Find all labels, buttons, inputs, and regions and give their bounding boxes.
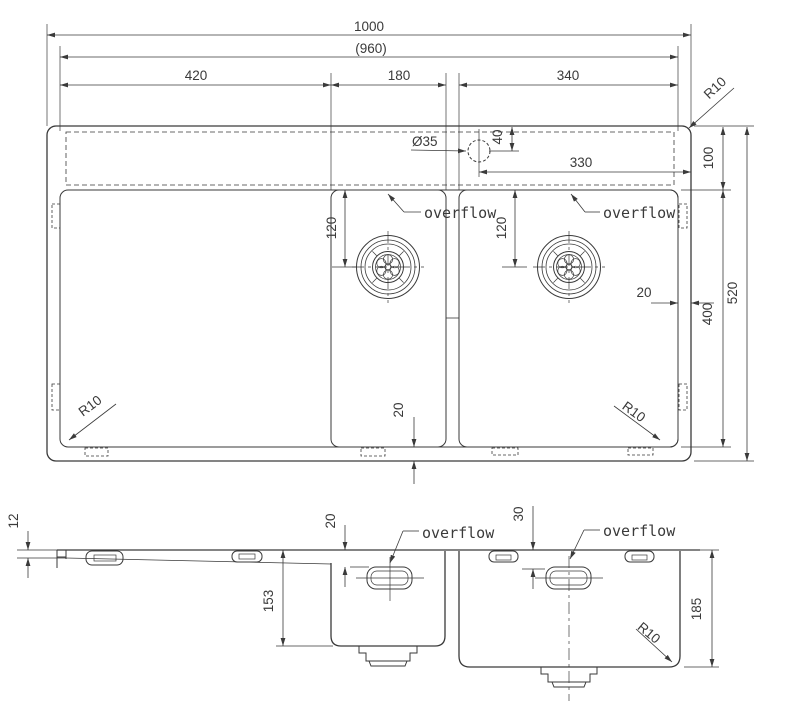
top-view: 1000 (960) 420 180 340 R10 Ø35 40 330 10… xyxy=(47,19,754,484)
dim-rim-thickness: 12 xyxy=(6,513,21,528)
sink-outer-outline xyxy=(47,126,691,461)
dim-faucet-from-right: 330 xyxy=(570,155,593,170)
overflow-label-top-left: overflow xyxy=(424,204,497,222)
dim-small-bowl-depth: 153 xyxy=(261,590,276,613)
dim-small-bowl-width: 180 xyxy=(388,68,411,83)
dim-overall-width: 1000 xyxy=(354,19,384,34)
overflow-hole-small xyxy=(356,557,424,601)
dim-large-bowl-width: 340 xyxy=(557,68,580,83)
leader-lines-top xyxy=(69,88,734,440)
overflow-label-top-right: overflow xyxy=(603,204,676,222)
small-bowl-outline xyxy=(331,190,446,447)
dim-ledge-depth: 100 xyxy=(701,147,716,170)
overflow-label-side-small: overflow xyxy=(422,524,495,542)
drainboard-ribs xyxy=(86,551,262,565)
dim-overflow-offset-large: 30 xyxy=(511,506,526,521)
dim-drain-offset-right: 120 xyxy=(494,217,509,240)
large-bowl-outline xyxy=(459,190,678,447)
dim-rim-right: 20 xyxy=(636,285,651,300)
radius-label-top-right: R10 xyxy=(701,74,729,102)
dim-overflow-offset-small: 20 xyxy=(323,513,338,528)
large-bowl-section xyxy=(459,551,680,667)
sink-technical-drawing: 1000 (960) 420 180 340 R10 Ø35 40 330 10… xyxy=(0,0,800,710)
dim-faucet-offset: 40 xyxy=(490,129,505,144)
sink-inner-opening xyxy=(60,190,678,447)
extension-lines-top xyxy=(47,24,754,461)
faucet-diameter-label: Ø35 xyxy=(412,134,438,149)
dim-overall-depth: 520 xyxy=(725,282,740,305)
sink-technical-drawing-page: 1000 (960) 420 180 340 R10 Ø35 40 330 10… xyxy=(0,0,800,710)
dim-inner-width: (960) xyxy=(355,41,387,56)
drain-fitting-small xyxy=(359,646,417,666)
left-edge-profile xyxy=(57,550,66,568)
small-bowl-section xyxy=(331,551,445,646)
drain-large-bowl xyxy=(533,231,605,303)
radius-label-side: R10 xyxy=(635,619,664,646)
dim-drainboard-width: 420 xyxy=(185,68,208,83)
drain-small-bowl xyxy=(352,231,424,303)
dim-rim-bottom: 20 xyxy=(391,402,406,417)
dim-drain-offset-left: 120 xyxy=(324,217,339,240)
overflow-label-side-large: overflow xyxy=(603,522,676,540)
dim-large-bowl-depth: 185 xyxy=(689,598,704,621)
side-view: 12 20 overflow 30 overflow 153 185 R10 xyxy=(6,506,719,701)
dim-bowl-opening-depth: 400 xyxy=(700,303,715,326)
radius-label-bottom-left: R10 xyxy=(76,392,105,419)
extension-lines-side xyxy=(17,550,719,667)
